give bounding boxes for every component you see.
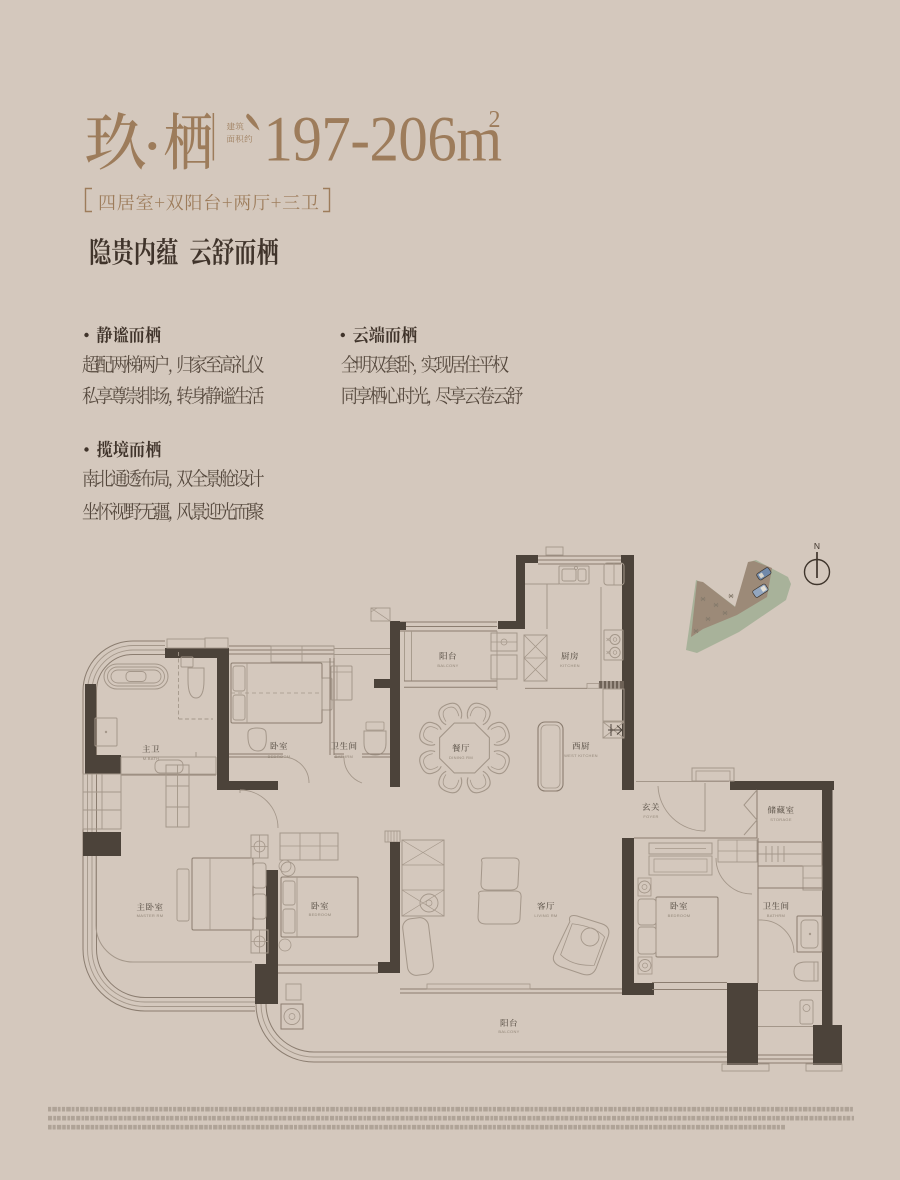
svg-text:197-206m: 197-206m bbox=[264, 104, 502, 175]
svg-text:KITCHEN: KITCHEN bbox=[560, 663, 580, 668]
svg-text:BATHRM: BATHRM bbox=[767, 913, 785, 918]
svg-text:DINING RM: DINING RM bbox=[449, 755, 473, 760]
svg-text:N: N bbox=[814, 541, 820, 551]
svg-text:FOYER: FOYER bbox=[643, 814, 658, 819]
svg-text:BEDROOM: BEDROOM bbox=[309, 912, 332, 917]
svg-text:BALCONY: BALCONY bbox=[437, 663, 458, 668]
svg-text:M.BATH: M.BATH bbox=[143, 756, 160, 761]
svg-text:LIVING RM: LIVING RM bbox=[534, 913, 557, 918]
svg-text:BALCONY: BALCONY bbox=[498, 1029, 519, 1034]
svg-text:STORAGE: STORAGE bbox=[770, 817, 792, 822]
svg-text:MASTER RM: MASTER RM bbox=[137, 913, 164, 918]
svg-text:BEDROOM: BEDROOM bbox=[668, 913, 691, 918]
svg-text:WEST KITCHEN: WEST KITCHEN bbox=[564, 753, 598, 758]
svg-text:2: 2 bbox=[489, 107, 501, 133]
svg-text:BATHRM: BATHRM bbox=[335, 754, 353, 759]
